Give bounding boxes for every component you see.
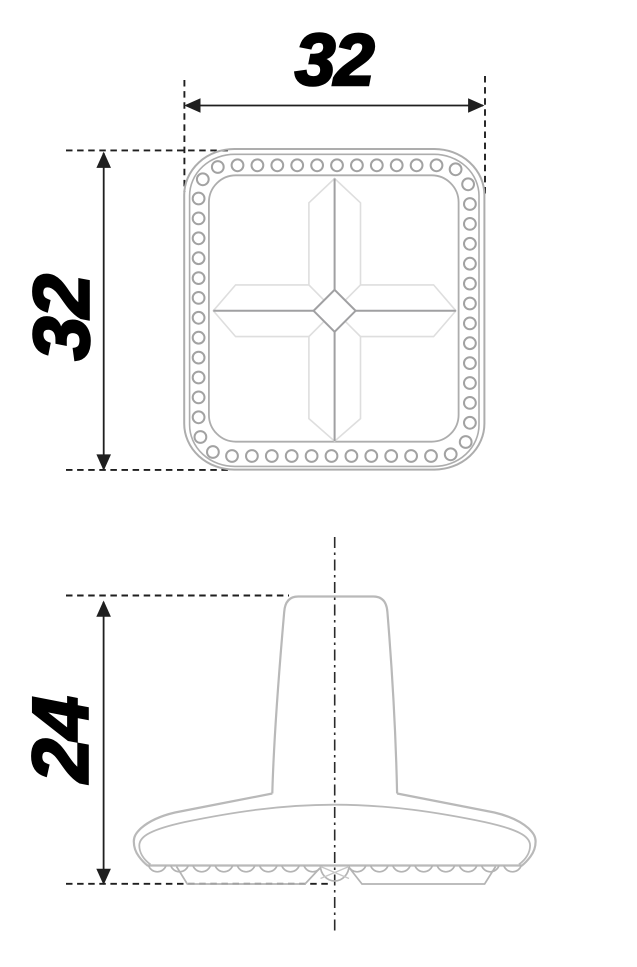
- svg-text:32: 32: [17, 274, 106, 360]
- svg-text:32: 32: [295, 20, 374, 101]
- svg-text:24: 24: [16, 697, 105, 784]
